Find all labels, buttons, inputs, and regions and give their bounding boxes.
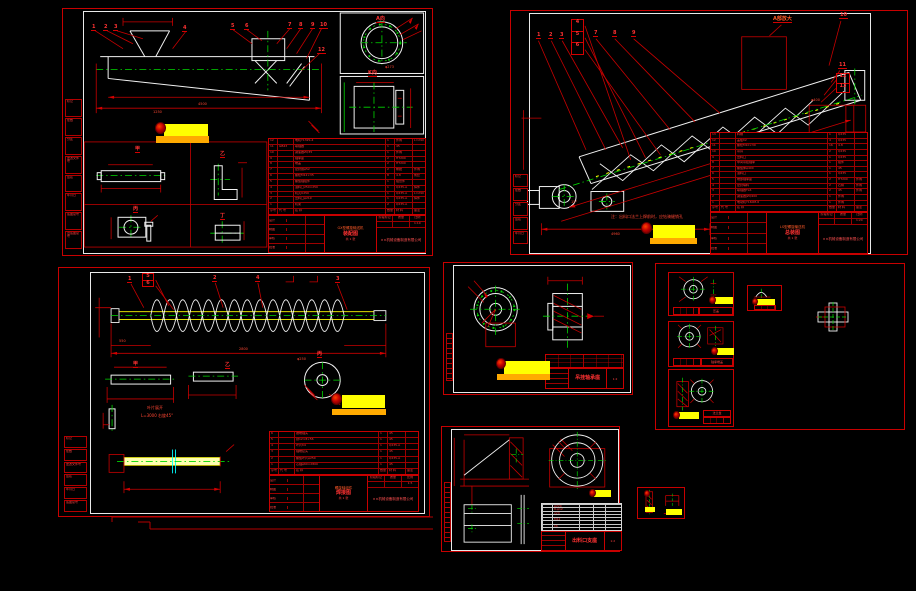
bom-table — [545, 354, 624, 368]
sig-label: 设计 — [270, 479, 288, 482]
detail-label-1: 甲 — [135, 147, 140, 153]
balloon-3: 3 — [113, 25, 118, 31]
mini-label: 比例 — [852, 213, 867, 218]
table-cell — [579, 528, 593, 530]
margin-box: 更改文件号 — [64, 462, 87, 474]
mini-label: 比例 — [402, 476, 418, 481]
flame-logo — [673, 411, 680, 419]
watermark-stamp — [504, 361, 550, 374]
watermark-stamp — [679, 412, 699, 419]
table-cell: 序号 — [270, 469, 278, 474]
table-cell: 代 号 — [719, 206, 735, 211]
table-cell — [542, 528, 552, 530]
flame-logo — [752, 298, 758, 305]
dim-text: 1250 — [153, 111, 162, 115]
table-cell — [593, 528, 605, 530]
table-cell: 数量 — [827, 206, 836, 211]
flame-logo — [711, 347, 718, 355]
balloon-10: 10 — [319, 23, 328, 29]
flame-logo — [589, 489, 596, 497]
balloon-2: 2 — [548, 33, 553, 39]
drawing-title: 总装图 — [785, 231, 800, 236]
mini-label: 阶段标记 — [377, 216, 393, 221]
table-cell: 数量 — [378, 469, 387, 474]
sig-label: 批准 — [270, 506, 288, 509]
revision-margin: 标记 处数 分区 更改文件号 签名 年月日 底图总号 旧底图总号 — [65, 99, 82, 249]
flame-logo — [644, 490, 650, 497]
sheet-end-cover-e2[interactable]: 轴承端盖 — [668, 321, 734, 367]
scale-value: 1:2 — [613, 377, 618, 381]
sig-label: 审核 — [269, 237, 287, 240]
dim-text: φ250 — [297, 358, 306, 362]
bom-table: 13料槽1Q23512盖板δ24Q23511螺栓M10×30164.810吊耳2… — [710, 132, 868, 212]
note-line-2: L=3000 右旋45° — [141, 414, 173, 419]
balloon-3: 3 — [559, 33, 564, 39]
signature-grid: 设计 制图 审核 批准 — [269, 216, 325, 252]
balloon-8: 8 — [298, 23, 303, 29]
sig-label: 设计 — [711, 216, 729, 219]
part-title: 法兰盘 — [703, 410, 731, 417]
drawing-title: 出料口支座 — [572, 539, 597, 544]
watermark-stamp-base — [156, 136, 209, 143]
sheet-assembly-b[interactable]: 1 2 3 456 7 8 9 10 11 1213 A部放大 注：出料口法兰上… — [510, 10, 908, 255]
margin-box: 签名 — [65, 175, 82, 193]
balloon-5: 5 — [230, 24, 235, 30]
company-name: ××机械设备制造有限公司 — [368, 488, 418, 511]
margin-box: 标记 — [65, 99, 82, 117]
table-cell: 材 料 — [394, 209, 412, 214]
title-block: 设计 制图 审核 批准 螺旋轴组件 焊接图 共 1 张 阶段标记质量比例 1:5… — [269, 475, 419, 512]
watermark-stamp — [666, 509, 682, 515]
sig-label: 审核 — [711, 237, 729, 240]
sig-label: 批准 — [711, 247, 729, 250]
title-strip-grid — [754, 305, 776, 310]
balloon-1: 1 — [91, 25, 96, 31]
company-name: ××机械设备制造有限公司 — [819, 225, 867, 253]
detail-label-1: 甲 — [133, 362, 138, 368]
mini-label: 质量 — [393, 216, 409, 221]
table-row: 序号代 号名 称数量材 料备注 — [711, 205, 867, 211]
title-block: 设计 制图 审核 批准 GX型螺旋输送机 装配图 共 1 张 阶段标记质量比例 … — [268, 215, 426, 253]
watermark-stamp — [653, 225, 695, 238]
detail-parts — [97, 166, 240, 241]
title-strip-grid — [673, 358, 701, 366]
note-line-1: 叶片展开 — [147, 406, 163, 411]
dim-text: 4500 — [198, 103, 207, 107]
bom-table: 12电机Y132S-41外购L=29011GB43联轴器14510减速器ZQ35… — [268, 138, 426, 215]
table-row — [542, 527, 621, 530]
balloon-1: 1 — [127, 277, 132, 283]
cad-canvas[interactable]: 1 2 3 4 5 6 7 8 9 10 12 A向 K向 甲 乙 丙 丁 45… — [0, 0, 916, 591]
dim-text: 2800 — [239, 348, 248, 352]
balloon-3: 3 — [335, 277, 340, 283]
balloon-4: 4 — [255, 276, 260, 282]
partial-sheet-edge — [100, 510, 440, 535]
balloon-10: 10 — [839, 13, 848, 19]
balloon-7: 7 — [287, 23, 292, 29]
table-cell: 代 号 — [278, 469, 294, 474]
mini-label: 质量 — [385, 476, 402, 481]
margin-box: 年月日 — [513, 231, 528, 244]
part-title: 轴承端盖 — [701, 358, 733, 366]
table-cell: 备注 — [405, 469, 418, 474]
balloon-stack-456: 456 — [571, 19, 584, 55]
balloon-9: 9 — [310, 23, 315, 29]
watermark-stamp — [164, 124, 208, 136]
detail-a-label: A部放大 — [773, 17, 792, 23]
balloon-2: 2 — [212, 276, 217, 282]
detail-label-2: 乙 — [220, 152, 225, 158]
margin-box: 标记 — [513, 174, 528, 187]
sheet-screw-shaft-c[interactable]: 1 56 2 4 3 甲 乙 丙 叶片展开 L=3000 右旋45° 2800 … — [58, 267, 430, 517]
margin-box: 处数 — [513, 188, 528, 201]
title-strip-grid — [673, 307, 699, 315]
margin-box: 分区 — [65, 137, 82, 155]
flange-circles — [474, 288, 582, 340]
signature-grid: 设计 制图 审核 批准 — [711, 213, 767, 253]
margin-box: 标记 — [64, 436, 87, 448]
table-cell: 代 号 — [277, 209, 293, 214]
scale-value: 1:2 — [610, 539, 615, 543]
balloon-4: 4 — [182, 26, 187, 32]
watermark-stamp-base — [650, 238, 697, 244]
mini-label: 比例 — [410, 216, 425, 221]
table-row: 序号代 号名 称数量材 料备注 — [270, 468, 418, 474]
margin-box: 底图总号 — [64, 500, 87, 512]
balloon-1: 1 — [536, 33, 541, 39]
company-name: ××机械设备制造有限公司 — [377, 228, 425, 252]
dim-text: φ400 — [811, 99, 820, 103]
sheet-support-f[interactable]: φ2208-φ12220M12δ6 出料口支座 1:2 — [441, 426, 620, 552]
title-block: 出料口支座 1:2 — [541, 531, 622, 551]
watermark-stamp — [594, 490, 611, 497]
watermark-stamp-base — [497, 374, 550, 380]
flame-logo — [709, 296, 716, 304]
table-cell: 材 料 — [387, 469, 405, 474]
signature-grid: 设计 制图 审核 批准 — [270, 476, 320, 511]
detail-label-3: 丙 — [133, 207, 138, 213]
hole-table: φ2208-φ12220M12δ6 — [541, 503, 622, 531]
dim-text: 15° — [571, 201, 577, 205]
table-cell: 数量 — [385, 209, 394, 214]
sig-label: 设计 — [269, 219, 287, 222]
detail-parts — [109, 362, 340, 428]
view-label-k: K向 — [368, 71, 377, 77]
table-cell: 序号 — [269, 209, 277, 214]
mini-label: 质量 — [835, 213, 851, 218]
watermark-stamp — [717, 348, 734, 355]
frame-small-parts[interactable]: 压盖 — [655, 263, 905, 430]
mini-label: 阶段标记 — [819, 213, 835, 218]
sheet-flange-e3[interactable]: 法兰盘 — [668, 369, 734, 427]
dim-text: 4960 — [611, 233, 620, 237]
detail-label-2: 乙 — [225, 363, 230, 369]
margin-box: 年月日 — [64, 487, 87, 499]
flame-logo — [155, 122, 166, 134]
balloon-stack-1213: 1213 — [836, 73, 850, 93]
balloon-stack-56: 56 — [142, 273, 154, 287]
dim-text: φ273 — [385, 66, 394, 70]
sig-label: 审核 — [270, 497, 288, 500]
scale-value: 1:10 — [410, 222, 425, 227]
revision-margin — [444, 482, 451, 542]
title-block: 设计 制图 审核 批准 LS型螺旋输送机 总装图 共 1 张 阶段标记质量比例 … — [710, 212, 868, 254]
margin-box: 更改文件号 — [65, 156, 82, 174]
part-title: 压盖 — [699, 307, 733, 315]
dim-text: 550 — [119, 340, 126, 344]
watermark-stamp — [342, 395, 385, 408]
sheet-gland-e1[interactable]: 压盖 — [668, 272, 734, 316]
table-row: 序号代 号名 称数量材 料备注 — [269, 208, 425, 214]
bom-table: 6锥端轴头1455键12×8×561454叶片δ41Q235-A3轴端接头145… — [269, 431, 419, 475]
flame-logo — [331, 393, 342, 405]
sheet-washer-etop[interactable] — [747, 285, 782, 311]
title-strip-grid — [703, 417, 731, 424]
panel-detail-g[interactable] — [637, 487, 685, 519]
detail-label-3: 丙 — [317, 352, 322, 358]
balloon-9: 9 — [631, 31, 636, 37]
sheet-bearing-d[interactable]: 吊挂轴承座 1:2 — [443, 262, 633, 395]
mini-label: 阶段标记 — [368, 476, 385, 481]
table-cell: 名 称 — [293, 209, 385, 214]
sig-label: 制图 — [270, 488, 288, 491]
revision-margin: 标记 处数 分区 签名 年月日 — [513, 174, 528, 244]
view-label-flange: A向 — [376, 17, 385, 23]
flame-logo — [641, 222, 652, 234]
sig-label: 制图 — [269, 228, 287, 231]
watermark-stamp — [645, 507, 655, 512]
watermark-stamp — [757, 299, 775, 305]
margin-box: 底图总号 — [65, 212, 82, 230]
margin-box: 分区 — [513, 202, 528, 215]
balloon-8: 8 — [612, 31, 617, 37]
sheet-count: 共 1 张 — [788, 237, 798, 240]
scale-value: 1:20 — [852, 219, 867, 224]
title-block: 吊挂轴承座 1:2 — [545, 368, 624, 389]
margin-box: 签名 — [64, 474, 87, 486]
note-text: 注：出料口法兰上焊前时，应钻骑缝销孔 — [611, 215, 683, 220]
table-cell: 名 称 — [735, 206, 827, 211]
margin-box: 处数 — [65, 118, 82, 136]
sheet-assembly-a[interactable]: 1 2 3 4 5 6 7 8 9 10 12 A向 K向 甲 乙 丙 丁 45… — [62, 8, 433, 256]
table-cell: 名 称 — [294, 469, 378, 474]
dimension-lines — [468, 277, 604, 347]
table-cell: 序号 — [711, 206, 719, 211]
drawing-title: 吊挂轴承座 — [575, 376, 600, 381]
table-cell: 备注 — [854, 206, 867, 211]
balloon-11: 11 — [838, 63, 847, 69]
sheet-count: 共 1 张 — [339, 497, 349, 500]
revision-margin: 标记 处数 更改文件号 签名 年月日 底图总号 — [64, 436, 87, 512]
balloon-6: 6 — [244, 24, 249, 30]
sig-label: 制图 — [711, 226, 729, 229]
sig-label: 批准 — [269, 246, 287, 249]
sheet-count: 共 1 张 — [346, 238, 356, 241]
margin-box: 旧底图总号 — [65, 231, 82, 249]
balloon-12: 12 — [317, 48, 326, 54]
flame-logo — [496, 358, 506, 369]
table-cell: 备注 — [412, 209, 425, 214]
margin-box: 年月日 — [65, 193, 82, 211]
bolt-circle — [344, 24, 400, 132]
balloon-7: 7 — [593, 31, 598, 37]
signature-grid — [542, 532, 566, 550]
watermark-stamp-base — [332, 409, 386, 415]
drawing-cross-part[interactable] — [816, 302, 850, 332]
revision-margin — [446, 333, 453, 381]
table-cell: 材 料 — [836, 206, 854, 211]
margin-box: 处数 — [64, 449, 87, 461]
margin-box: 签名 — [513, 217, 528, 230]
drive-unit — [527, 185, 623, 212]
detail-label-4: 丁 — [220, 214, 225, 220]
balloon-2: 2 — [103, 25, 108, 31]
trough-geometry — [100, 31, 314, 100]
scale-value: 1:5 — [402, 482, 418, 487]
bracket-red — [454, 435, 605, 505]
table-cell — [605, 528, 621, 530]
watermark-stamp — [715, 297, 733, 304]
table-cell — [552, 528, 579, 530]
drawing-title: 装配图 — [343, 232, 358, 237]
